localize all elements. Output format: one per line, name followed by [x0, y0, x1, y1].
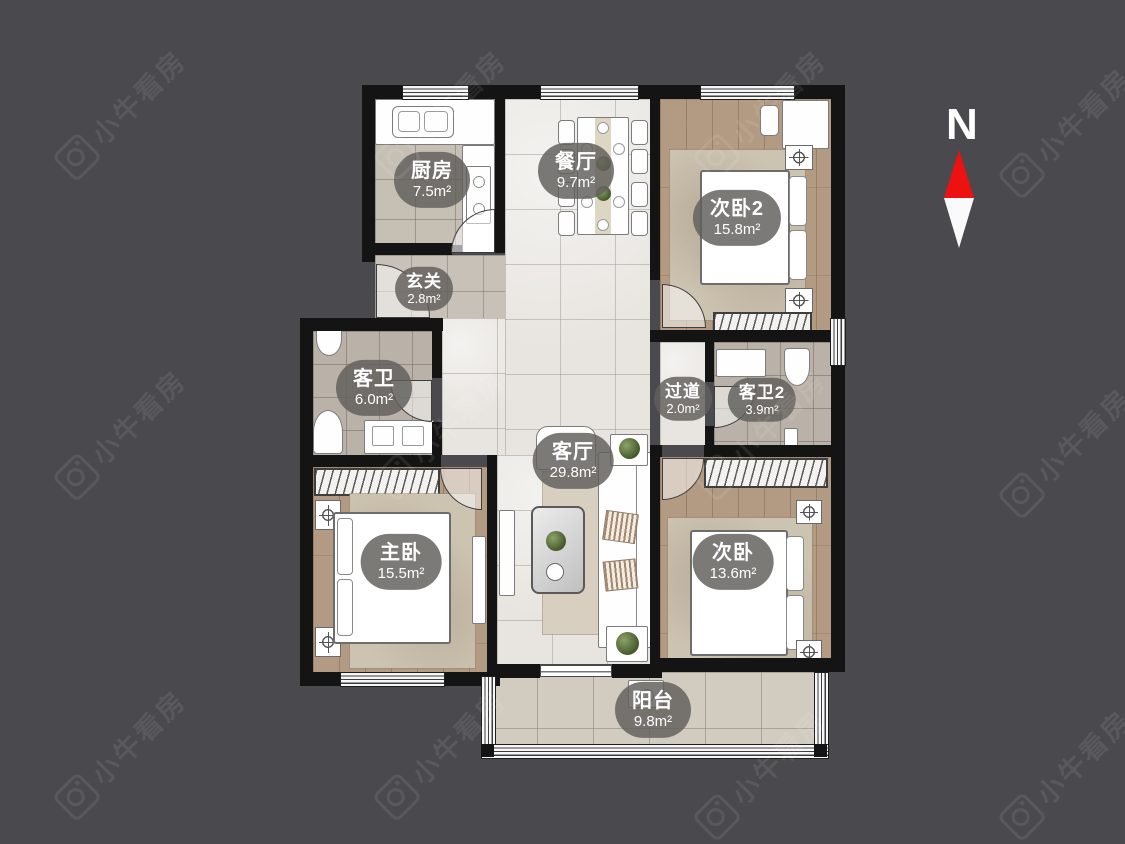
- bedroom-wardrobe: [704, 458, 828, 488]
- room-name: 玄关: [406, 272, 442, 292]
- room-area: 29.8m²: [550, 464, 597, 481]
- watermark-text: 小牛看房: [81, 40, 193, 152]
- balcony-sliding-door: [540, 665, 612, 677]
- wall-bedroom2-left: [650, 85, 660, 280]
- bedroom2-window: [700, 85, 795, 100]
- room-name: 客厅: [550, 441, 597, 464]
- room-label-bedroom2: 次卧2 15.8m²: [693, 190, 781, 246]
- room-label-kitchen: 厨房 7.5m²: [394, 152, 470, 208]
- wall-bottom-living-left: [497, 664, 540, 678]
- room-area: 15.8m²: [710, 221, 764, 238]
- balcony-railing-right: [814, 672, 829, 746]
- master-wardrobe: [314, 468, 440, 496]
- room-label-dining: 餐厅 9.7m²: [538, 143, 614, 199]
- wall-kitchen-right: [495, 85, 505, 253]
- wall-master-top: [300, 455, 441, 467]
- room-area: 6.0m²: [353, 391, 395, 408]
- balcony-railing-bottom: [481, 744, 829, 759]
- room-area: 9.7m²: [555, 174, 597, 191]
- tv-cabinet: [499, 510, 515, 596]
- wall-bedroom-left: [650, 457, 660, 672]
- compass-needle-north-icon: [944, 150, 974, 198]
- room-name: 厨房: [411, 160, 453, 183]
- room-area: 2.0m²: [665, 401, 701, 416]
- living-plant: [619, 438, 640, 459]
- room-label-balcony: 阳台 9.8m²: [615, 682, 691, 738]
- room-area: 9.8m²: [632, 713, 674, 730]
- watermark: 小牛看房: [50, 40, 194, 184]
- watermark: 小牛看房: [50, 680, 194, 824]
- watermark-text: 小牛看房: [81, 360, 193, 472]
- watermark: 小牛看房: [995, 700, 1125, 844]
- sofa-cushion: [603, 558, 639, 591]
- room-area: 7.5m²: [411, 183, 453, 200]
- room-name: 主卧: [378, 542, 425, 565]
- room-name: 次卧2: [710, 198, 764, 221]
- niuniu-logo-icon: [371, 771, 422, 822]
- room-label-master: 主卧 15.5m²: [361, 534, 442, 590]
- plate: [597, 122, 609, 134]
- bedroom2-nightstand-lamp: [785, 145, 813, 170]
- living-plant: [616, 632, 639, 655]
- room-name: 过道: [665, 382, 701, 402]
- wall-guest-bath-right-lower: [432, 422, 442, 455]
- room-name: 次卧: [710, 542, 757, 565]
- wall-left-upper: [362, 85, 375, 262]
- guest-bath-basin: [372, 426, 394, 446]
- plate: [597, 219, 609, 231]
- kitchen-window: [402, 85, 469, 100]
- room-label-entry: 玄关 2.8m²: [395, 267, 453, 311]
- wall-right: [831, 85, 845, 672]
- bedroom2-pillow: [789, 230, 807, 280]
- dining-chair: [631, 182, 648, 207]
- bedroom2-chair: [760, 105, 779, 136]
- coffee-table-plant: [546, 531, 566, 551]
- wall-bath2-divider-upper: [705, 342, 714, 382]
- bedroom-nightstand-lamp: [796, 500, 822, 524]
- wall-left-lower: [300, 318, 313, 686]
- niuniu-logo-icon: [51, 131, 102, 182]
- niuniu-logo-icon: [996, 469, 1047, 520]
- niuniu-logo-icon: [996, 149, 1047, 200]
- dining-chair: [558, 211, 575, 236]
- master-pillow: [337, 579, 353, 636]
- balcony-post-left: [481, 744, 494, 757]
- wall-kitchen-bottom: [362, 243, 452, 255]
- guest-bath2-sink: [716, 349, 766, 377]
- room-name: 阳台: [632, 690, 674, 713]
- wall-row-bottom-left: [650, 445, 662, 457]
- guest-bath2-toilet: [784, 348, 810, 386]
- guest-bath2-window: [830, 318, 846, 366]
- wall-row-bottom-right: [704, 445, 845, 457]
- wall-bedroom2-bottom: [650, 330, 845, 342]
- dining-window: [540, 85, 639, 100]
- dining-chair: [631, 120, 648, 145]
- kitchen-sink-basin-right: [424, 111, 448, 132]
- guest-bath-basin: [402, 426, 424, 446]
- master-window: [340, 672, 445, 687]
- floor-plan-page: 厨房 7.5m² 餐厅 9.7m² 次卧2 15.8m² 玄关 2.8m² 客卫…: [0, 0, 1125, 844]
- watermark: 小牛看房: [995, 378, 1125, 522]
- room-label-living: 客厅 29.8m²: [533, 433, 614, 489]
- balcony-railing-left: [481, 676, 496, 746]
- room-name: 餐厅: [555, 151, 597, 174]
- room-label-guest-bath: 客卫 6.0m²: [336, 360, 412, 416]
- room-area: 3.9m²: [739, 402, 785, 417]
- watermark-text: 小牛看房: [81, 680, 193, 792]
- wall-master-right: [487, 455, 497, 672]
- bedroom2-nightstand-lamp: [785, 288, 813, 313]
- wall-guest-bath-right-upper: [432, 318, 442, 378]
- bedroom2-desk: [782, 100, 829, 149]
- plate: [613, 143, 625, 155]
- niuniu-logo-icon: [51, 771, 102, 822]
- room-label-guest-bath2: 客卫2 3.9m²: [728, 378, 796, 422]
- niuniu-logo-icon: [691, 791, 742, 842]
- room-area: 2.8m²: [406, 291, 442, 306]
- plate: [613, 196, 625, 208]
- watermark: 小牛看房: [995, 58, 1125, 202]
- dining-chair: [558, 120, 575, 145]
- wall-notch: [300, 318, 443, 331]
- room-label-bedroom: 次卧 13.6m²: [693, 534, 774, 590]
- bedroom2-pillow: [789, 176, 807, 226]
- watermark-text: 小牛看房: [1026, 378, 1125, 490]
- master-pillow: [337, 518, 353, 575]
- guest-bath-shower: [313, 410, 343, 454]
- balcony-post-right: [814, 744, 827, 757]
- sofa-cushion: [602, 510, 639, 544]
- compass-needle-south-icon: [944, 198, 974, 248]
- room-name: 客卫: [353, 368, 395, 391]
- watermark: 小牛看房: [50, 360, 194, 504]
- watermark-text: 小牛看房: [1026, 58, 1125, 170]
- room-area: 15.5m²: [378, 565, 425, 582]
- niuniu-logo-icon: [996, 791, 1047, 842]
- room-name: 客卫2: [739, 383, 785, 403]
- dining-chair: [631, 149, 648, 174]
- niuniu-logo-icon: [51, 451, 102, 502]
- room-area: 13.6m²: [710, 565, 757, 582]
- master-tv-stand: [472, 536, 486, 624]
- bedroom-pillow: [786, 536, 804, 591]
- room-label-hallway: 过道 2.0m²: [654, 377, 712, 421]
- hall-extension-floor: [442, 318, 505, 455]
- watermark-text: 小牛看房: [1026, 700, 1125, 812]
- coffee-table-tray: [546, 563, 564, 581]
- wall-bottom-bedroom: [655, 658, 845, 672]
- compass-north-label: N: [946, 100, 978, 150]
- dining-chair: [631, 211, 648, 236]
- kitchen-sink-basin-left: [398, 111, 420, 132]
